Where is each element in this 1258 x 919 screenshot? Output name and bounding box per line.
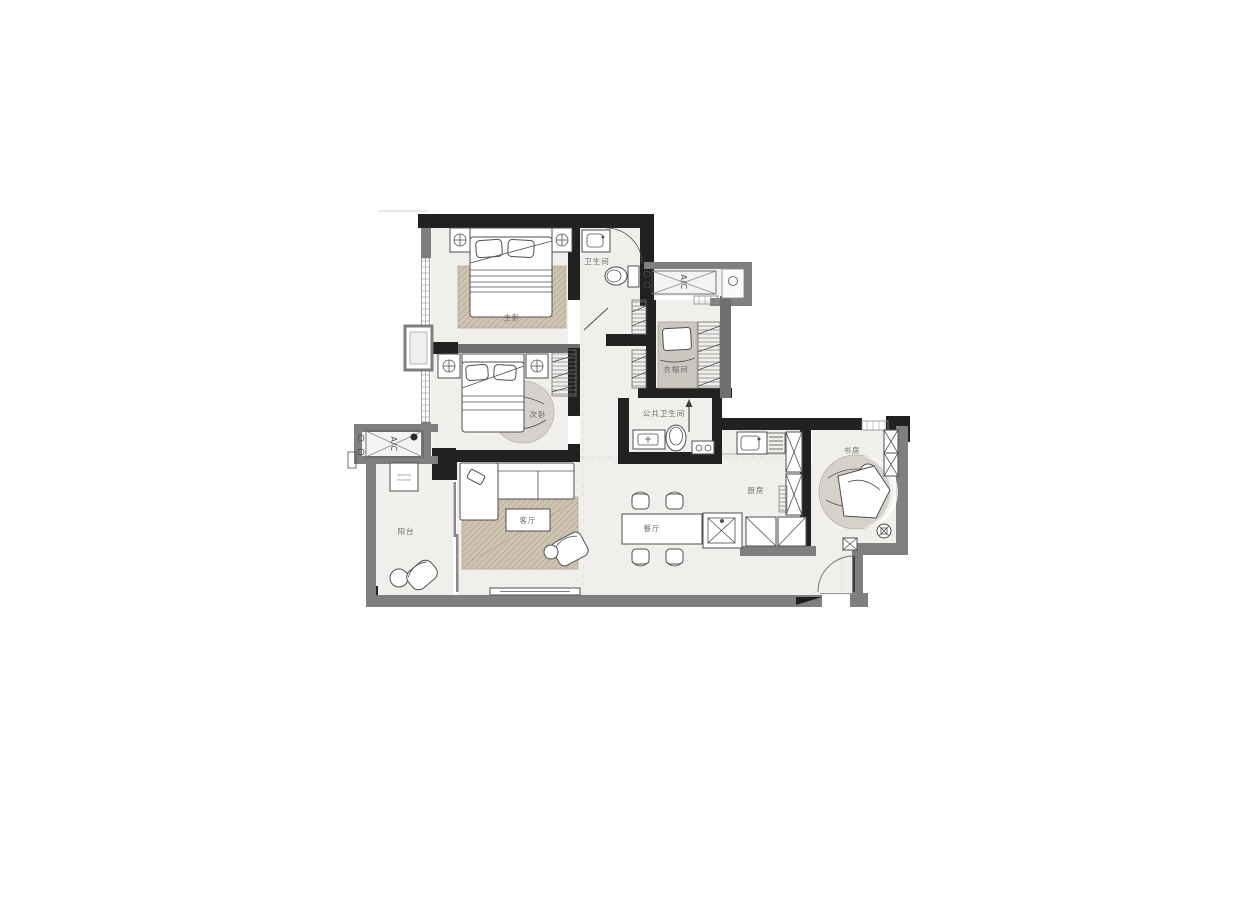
wall-master-left-a — [421, 228, 431, 258]
pipe-icon — [411, 434, 418, 441]
kitchen-sink — [737, 432, 767, 454]
window-master-left — [422, 258, 430, 328]
pillow — [466, 364, 489, 380]
kitchen-label: 厨房 — [748, 485, 765, 495]
daybed — [658, 322, 697, 388]
dining-chair — [666, 492, 683, 509]
second-bed — [462, 354, 524, 432]
faucet-icon — [758, 438, 761, 441]
wardrobe-corridor-b — [632, 350, 646, 388]
wall-kitchen-bottom — [740, 546, 816, 556]
ac-left-label: A/C — [389, 436, 398, 451]
wall-acwing-top — [644, 262, 752, 269]
shaft-symbol — [843, 538, 857, 550]
nightstand-right — [552, 228, 572, 252]
wall-bottom — [366, 595, 822, 607]
washer-label-2: machine — [397, 478, 411, 482]
dining-table — [622, 514, 702, 544]
tall-unit-fridge — [786, 432, 802, 472]
wardrobe-bed2 — [552, 350, 576, 396]
dining-chair — [666, 549, 683, 566]
tv-console — [490, 588, 580, 595]
study-label: 书房 — [844, 445, 861, 455]
bath-vanity — [582, 230, 610, 252]
side-table — [390, 569, 408, 587]
oven-tower — [779, 486, 787, 512]
window-cloak-top — [694, 296, 718, 304]
second-bedroom-label: 次卧 — [530, 409, 547, 419]
pb-shower — [692, 441, 714, 454]
wall-cloak-left — [646, 300, 656, 390]
ac-top-label: A/C — [679, 274, 688, 289]
nightstand-right — [526, 354, 548, 378]
wall-bed2-right-lower — [568, 444, 580, 462]
utility-closet — [722, 269, 744, 298]
window-study-top — [862, 421, 888, 430]
pb-toilet — [666, 425, 686, 451]
faucet-icon — [602, 236, 605, 239]
wardrobe-right — [698, 322, 720, 388]
balcony-label: 阳台 — [398, 526, 415, 536]
wall-cloak-right — [720, 296, 731, 398]
side-table — [544, 545, 558, 559]
pillow — [508, 239, 535, 257]
faucet-icon — [720, 519, 724, 523]
wall-bottom-right-block — [850, 593, 868, 607]
living-room-label: 客厅 — [520, 515, 537, 525]
dining-chair — [632, 549, 649, 566]
floor-drain-symbol — [877, 524, 891, 538]
bay-niche — [405, 326, 432, 370]
nightstand-left — [450, 228, 470, 252]
floor-plan-canvas: 主卧 卫生间 A/C — [0, 0, 1258, 919]
island-sink-unit — [703, 513, 742, 548]
washing-machine: Washing machine — [390, 463, 418, 491]
wall-top-master — [418, 214, 654, 228]
base-cabinet — [746, 517, 776, 546]
pb-vanity — [633, 430, 665, 449]
wall-living-top — [443, 450, 575, 462]
master-bedroom-label: 主卧 — [504, 312, 521, 322]
wall-cloak-bottom — [638, 388, 732, 398]
daybed-pillow — [662, 327, 691, 350]
wall-balcony-left — [366, 460, 376, 596]
wall-kitchen-top — [712, 418, 862, 430]
window-bed2-left — [422, 364, 430, 422]
dining-chair — [632, 492, 649, 509]
toilet — [605, 266, 639, 287]
dining-room-label: 餐厅 — [644, 524, 661, 533]
wall-unit-x — [884, 430, 898, 476]
sofa-chaise — [460, 463, 498, 520]
nightstand-left — [438, 354, 460, 378]
base-cabinet — [778, 517, 806, 546]
master-bedroom: 主卧 — [450, 228, 572, 328]
cloakroom-label: 衣帽间 — [663, 364, 689, 374]
wall-divider-chunk — [430, 342, 458, 354]
ensuite-bathroom-label: 卫生间 — [584, 256, 610, 266]
master-bed — [470, 228, 552, 317]
public-bathroom-label: 公共卫生间 — [643, 408, 686, 418]
floor-plan-svg: 主卧 卫生间 A/C — [0, 0, 1258, 919]
washer-label-1: Washing — [397, 473, 411, 477]
wardrobe-corridor-a — [632, 300, 646, 334]
wall-bath-bottom — [606, 334, 646, 346]
